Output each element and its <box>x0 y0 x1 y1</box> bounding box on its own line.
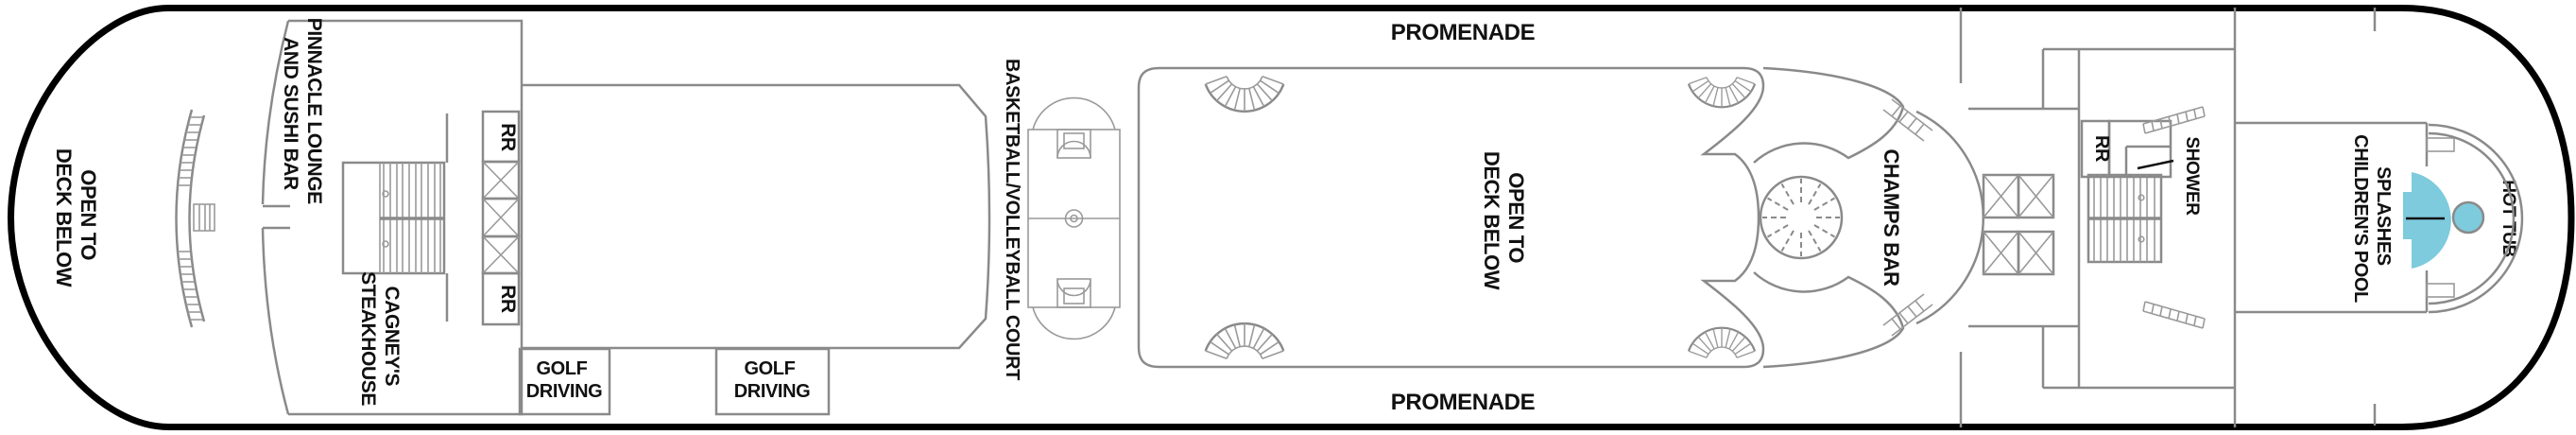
aft-diagonal-stairs-bottom-icon <box>2143 302 2205 328</box>
basketball-court-label: BASKETBALL/VOLLEYBALL COURT <box>1002 59 1022 380</box>
hoop-top-icon <box>1033 98 1115 158</box>
hot-tub-icon <box>2453 202 2483 233</box>
sports-complex: GOLF DRIVING GOLF DRIVING <box>520 85 989 414</box>
elevator-icon <box>2018 232 2053 274</box>
elevator-icon <box>1984 175 2018 217</box>
open-deck-outline <box>1139 68 1763 367</box>
svg-text:GOLF DRIVING: GOLF DRIVING <box>526 358 603 402</box>
aft-stair-rr-block: RR SHOWER <box>2082 107 2205 328</box>
rr-forward-bottom-label: RR <box>497 285 519 313</box>
shower-pointer-line <box>2138 161 2173 168</box>
bow-open-deck-label: OPEN TO DECK BELOW <box>52 148 100 287</box>
childrens-pool-shape <box>2403 172 2451 269</box>
rr-forward-top-label: RR <box>497 123 519 151</box>
elevator-icon <box>2018 175 2053 217</box>
deck-plan-svg: OPEN TO DECK BELOW PINNACLE LOUNGE AND S… <box>0 0 2576 435</box>
shower-label: SHOWER <box>2182 136 2202 216</box>
elevator-icon <box>483 236 519 273</box>
diagonal-stairs-bottom-icon <box>1883 294 1932 336</box>
golf-driving-forward: GOLF DRIVING <box>520 349 610 414</box>
rr-aft-label: RR <box>2091 135 2112 163</box>
deck-plan-page: OPEN TO DECK BELOW PINNACLE LOUNGE AND S… <box>0 0 2576 435</box>
sports-building-outline <box>522 85 989 348</box>
forward-staircase-icon <box>343 163 444 273</box>
hoop-bottom-icon <box>1033 279 1115 339</box>
pinnacle-lounge-label: PINNACLE LOUNGE AND SUSHI BAR <box>280 18 325 209</box>
champs-bar: CHAMPS BAR <box>1754 68 1984 367</box>
aft-staircase-icon <box>2088 175 2161 262</box>
champs-bar-label: CHAMPS BAR <box>1880 148 1903 287</box>
round-bar-icon <box>1760 177 1842 258</box>
diagonal-stairs-top-icon <box>1883 99 1932 141</box>
promenade-bottom-label: PROMENADE <box>1391 390 1536 415</box>
splashes-pool-area: SPLASHES CHILDREN'S POOL HOT TUB <box>2235 123 2522 312</box>
bow-inner-wall-bottom <box>263 228 288 414</box>
elevator-icon <box>1984 232 2018 274</box>
pinnacle-cagneys-room: PINNACLE LOUNGE AND SUSHI BAR CAGNEY'S S… <box>280 18 522 414</box>
center-open-deck: OPEN TO DECK BELOW <box>1139 68 1763 367</box>
basketball-court: BASKETBALL/VOLLEYBALL COURT <box>1002 59 1120 380</box>
champs-bar-arc-wall <box>1916 112 1984 323</box>
promenade-top-label: PROMENADE <box>1391 20 1536 45</box>
elevator-icon <box>483 162 519 199</box>
splashes-pool-label: SPLASHES CHILDREN'S POOL <box>2350 134 2394 303</box>
bow-open-deck: OPEN TO DECK BELOW <box>52 21 290 414</box>
bow-landing-icon <box>194 204 215 231</box>
cagneys-steakhouse-label: CAGNEY'S STEAKHOUSE <box>357 271 403 406</box>
elevator-icon <box>483 199 519 236</box>
svg-text:GOLF DRIVING: GOLF DRIVING <box>734 358 811 402</box>
center-open-deck-label: OPEN TO DECK BELOW <box>1480 151 1528 290</box>
golf-driving-aft: GOLF DRIVING <box>716 349 829 414</box>
forward-restroom-elevator-bank: RR RR <box>483 112 519 324</box>
